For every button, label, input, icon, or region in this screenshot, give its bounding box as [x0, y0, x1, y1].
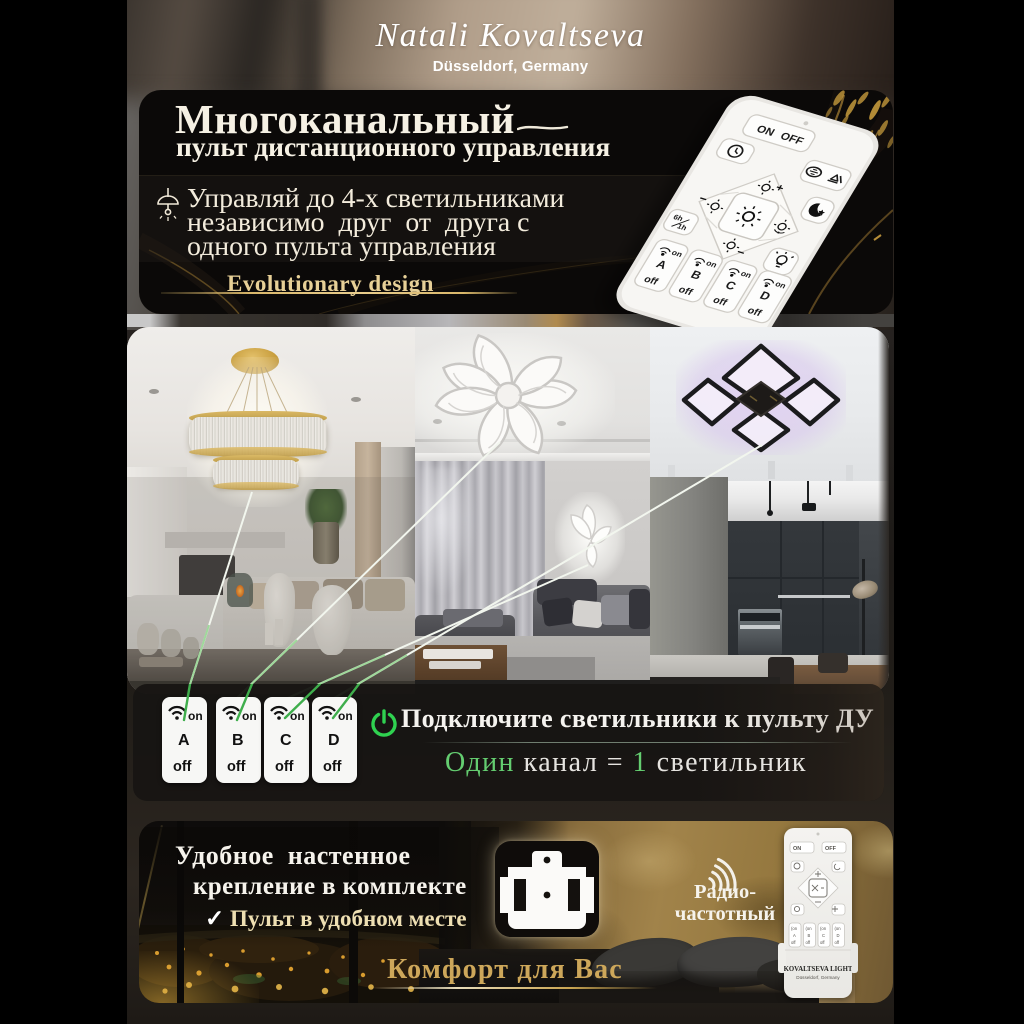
svg-text:A: A [793, 933, 796, 938]
svg-text:off: off [173, 759, 192, 775]
svg-text:B: B [808, 933, 811, 938]
svg-text:off: off [275, 759, 294, 775]
svg-text:(on: (on [791, 926, 798, 931]
svg-text:ON: ON [793, 846, 801, 852]
svg-text:D: D [837, 933, 840, 938]
svg-text:C: C [822, 933, 825, 938]
svg-text:KOVALTSEVA LIGHT: KOVALTSEVA LIGHT [784, 966, 852, 973]
svg-text:off: off [227, 759, 246, 775]
svg-text:(on: (on [835, 926, 842, 931]
svg-text:OFF: OFF [825, 846, 837, 852]
svg-text:(on: (on [806, 926, 813, 931]
svg-text:Düsseldorf, Germany: Düsseldorf, Germany [796, 975, 840, 980]
svg-text:(on: (on [820, 926, 827, 931]
svg-text:off: off [323, 759, 342, 775]
